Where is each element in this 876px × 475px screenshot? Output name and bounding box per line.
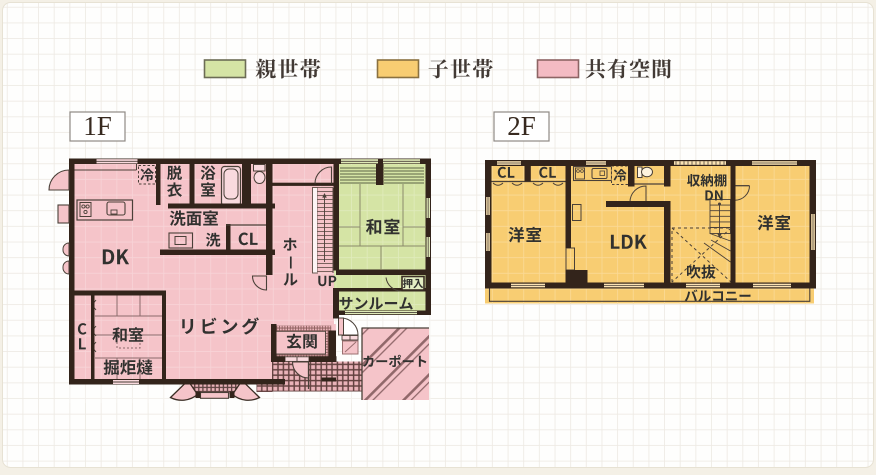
svg-text:1F: 1F bbox=[83, 111, 112, 141]
svg-text:2F: 2F bbox=[507, 111, 536, 141]
